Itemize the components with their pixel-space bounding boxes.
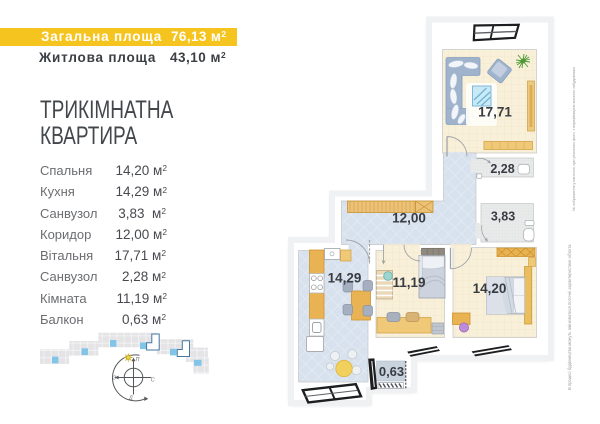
svg-text:2,28: 2,28 bbox=[490, 162, 514, 176]
svg-text:С: С bbox=[151, 378, 155, 384]
svg-text:11,19: 11,19 bbox=[392, 275, 425, 290]
svg-text:0,63: 0,63 bbox=[379, 364, 404, 379]
svg-text:12,00: 12,00 bbox=[392, 211, 426, 226]
svg-text:З: З bbox=[113, 376, 117, 382]
svg-text:14,20: 14,20 bbox=[473, 281, 507, 296]
svg-text:3,83: 3,83 bbox=[491, 210, 515, 224]
svg-text:Д: Д bbox=[128, 396, 133, 402]
svg-text:П: П bbox=[136, 357, 140, 363]
svg-text:14,29: 14,29 bbox=[328, 271, 362, 286]
svg-text:17,71: 17,71 bbox=[478, 105, 512, 120]
